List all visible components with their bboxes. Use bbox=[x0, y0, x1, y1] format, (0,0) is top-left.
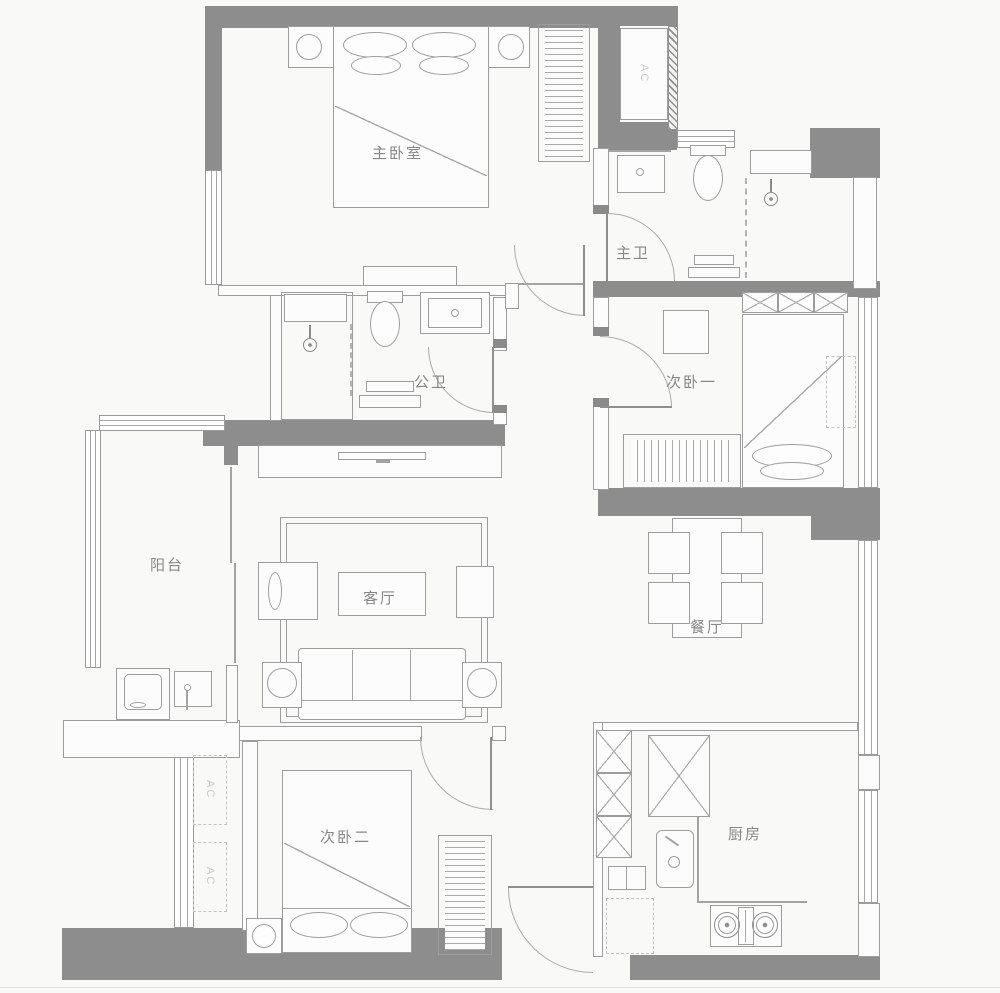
window bbox=[858, 297, 878, 488]
window bbox=[99, 415, 225, 431]
bath-stool bbox=[366, 381, 414, 392]
wall bbox=[205, 6, 222, 170]
counter-line bbox=[697, 817, 699, 903]
wall bbox=[598, 488, 880, 516]
ac-platform-label: AC bbox=[626, 40, 662, 108]
pillow bbox=[343, 32, 407, 58]
wall bbox=[602, 722, 858, 731]
room-label-master-bathroom: 主卫 bbox=[616, 242, 650, 263]
toilet-bowl bbox=[370, 301, 400, 347]
glass-partition bbox=[350, 324, 354, 396]
wall bbox=[493, 411, 507, 425]
door-arc-bedroom-one bbox=[600, 336, 672, 408]
door-jamb bbox=[493, 339, 507, 348]
pillow bbox=[419, 56, 469, 75]
wall bbox=[618, 6, 678, 26]
shower-head-icon bbox=[764, 192, 778, 206]
door-arc-master-bedroom bbox=[514, 245, 585, 316]
wall bbox=[811, 514, 880, 540]
tv-stand bbox=[376, 460, 390, 463]
washing-machine-door bbox=[130, 702, 146, 708]
dining-chair bbox=[721, 582, 763, 624]
counter-line bbox=[697, 901, 807, 903]
shower-ring bbox=[303, 338, 317, 352]
wardrobe bbox=[538, 24, 590, 162]
sink-drain bbox=[636, 168, 644, 176]
sofa-seat-divider bbox=[410, 650, 411, 700]
toilet-bowl bbox=[693, 155, 723, 201]
hatched-wall bbox=[668, 26, 678, 130]
side-console bbox=[456, 566, 494, 618]
bath-stool bbox=[694, 255, 734, 265]
shower-head-icon bbox=[303, 338, 317, 352]
nightstand-lamp-icon bbox=[252, 924, 276, 948]
floor-plan: AC AC AC 主卧室 公卫 bbox=[0, 0, 1000, 993]
dining-chair bbox=[721, 532, 763, 574]
dining-chair bbox=[648, 532, 690, 574]
nightstand-lamp-icon bbox=[498, 34, 524, 60]
pillow bbox=[350, 912, 408, 938]
room-label-guest-bathroom: 公卫 bbox=[414, 371, 448, 392]
wall bbox=[242, 741, 258, 931]
window bbox=[85, 430, 101, 668]
ac-indoor-unit bbox=[826, 356, 856, 428]
sink-drain bbox=[451, 309, 459, 317]
sliding-door-track bbox=[230, 467, 232, 563]
door-arc-bedroom-two bbox=[420, 737, 493, 810]
pillow bbox=[412, 32, 476, 58]
room-label-dining-room: 餐厅 bbox=[690, 616, 724, 637]
window-bench bbox=[750, 150, 812, 174]
sofa-side-table-top bbox=[467, 668, 497, 698]
shower-stem bbox=[770, 179, 772, 192]
ac-platform-label: AC bbox=[196, 760, 224, 820]
wall bbox=[607, 122, 677, 150]
cabinet-cell bbox=[742, 292, 778, 313]
room-label-kitchen: 厨房 bbox=[728, 823, 762, 844]
refrigerator bbox=[648, 735, 710, 817]
pillow bbox=[760, 462, 824, 480]
blanket-fold bbox=[284, 843, 410, 907]
shower-stem bbox=[309, 325, 311, 338]
wall bbox=[858, 903, 880, 957]
counter-line bbox=[609, 150, 671, 152]
sliding-door-track bbox=[234, 563, 236, 663]
wall bbox=[492, 726, 506, 741]
door-leaf bbox=[583, 245, 585, 316]
room-label-bedroom-two: 次卧二 bbox=[320, 826, 371, 847]
bath-mat bbox=[688, 267, 740, 278]
door-leaf bbox=[492, 347, 494, 413]
wall bbox=[810, 128, 880, 178]
wall bbox=[858, 755, 880, 790]
sofa-seat-divider bbox=[352, 650, 353, 700]
pillow bbox=[290, 912, 348, 938]
wall bbox=[853, 177, 877, 289]
cabinet-cell bbox=[596, 773, 632, 816]
nightstand-lamp-icon bbox=[296, 34, 322, 60]
sofa-back-line bbox=[300, 700, 464, 701]
window bbox=[858, 540, 878, 755]
shower-ring bbox=[764, 192, 778, 206]
radiator-cabinet bbox=[623, 434, 741, 488]
room-label-bedroom-one: 次卧一 bbox=[666, 371, 717, 392]
door-arc-entrance bbox=[508, 888, 593, 973]
door-leaf bbox=[508, 886, 593, 888]
room-label-master-bedroom: 主卧室 bbox=[372, 142, 423, 163]
image-border bbox=[0, 987, 1000, 988]
reserved-appliance bbox=[606, 898, 654, 954]
balcony-sink bbox=[174, 671, 212, 707]
pillow bbox=[351, 56, 401, 75]
glass-partition bbox=[745, 178, 749, 278]
armchair-cushion bbox=[268, 572, 282, 610]
armchair bbox=[258, 562, 318, 620]
wardrobe bbox=[438, 835, 492, 955]
door-leaf bbox=[490, 737, 492, 810]
wall bbox=[505, 283, 519, 309]
burner-icon bbox=[714, 912, 740, 938]
shower-shelf bbox=[284, 294, 347, 322]
door-leaf bbox=[600, 406, 672, 408]
faucet-icon bbox=[186, 688, 188, 710]
cabinet-cell bbox=[814, 292, 848, 313]
tv bbox=[338, 452, 426, 460]
bed-bench bbox=[363, 266, 457, 286]
wall bbox=[224, 443, 238, 465]
desk bbox=[663, 310, 709, 354]
cabinet-cell bbox=[596, 730, 632, 773]
small-cabinet bbox=[608, 866, 646, 890]
window bbox=[858, 790, 878, 903]
window bbox=[205, 170, 222, 285]
room-label-balcony: 阳台 bbox=[150, 554, 184, 575]
cabinet-divider bbox=[626, 867, 627, 889]
sofa-side-table-top bbox=[267, 668, 297, 698]
bed-line bbox=[283, 908, 411, 909]
burner-icon bbox=[752, 912, 778, 938]
wall bbox=[203, 420, 505, 446]
cabinet-cell bbox=[778, 292, 814, 313]
stove-grate bbox=[738, 907, 754, 945]
wall bbox=[238, 726, 422, 741]
blanket-fold bbox=[335, 106, 487, 176]
door-jamb bbox=[593, 327, 609, 336]
faucet-dot bbox=[184, 684, 191, 691]
wall bbox=[630, 955, 880, 980]
room-label-living-room: 客厅 bbox=[363, 587, 397, 608]
dining-chair bbox=[648, 582, 690, 624]
cabinet-cell bbox=[596, 816, 632, 858]
window bbox=[174, 757, 194, 928]
door-jamb bbox=[493, 405, 507, 413]
sofa bbox=[298, 648, 466, 720]
wall bbox=[226, 665, 238, 723]
wall bbox=[63, 720, 240, 758]
bath-mat bbox=[359, 395, 421, 408]
door-leaf bbox=[606, 213, 608, 281]
sink-drain bbox=[668, 856, 680, 868]
ac-platform-label: AC bbox=[196, 847, 224, 907]
wall bbox=[593, 406, 609, 490]
